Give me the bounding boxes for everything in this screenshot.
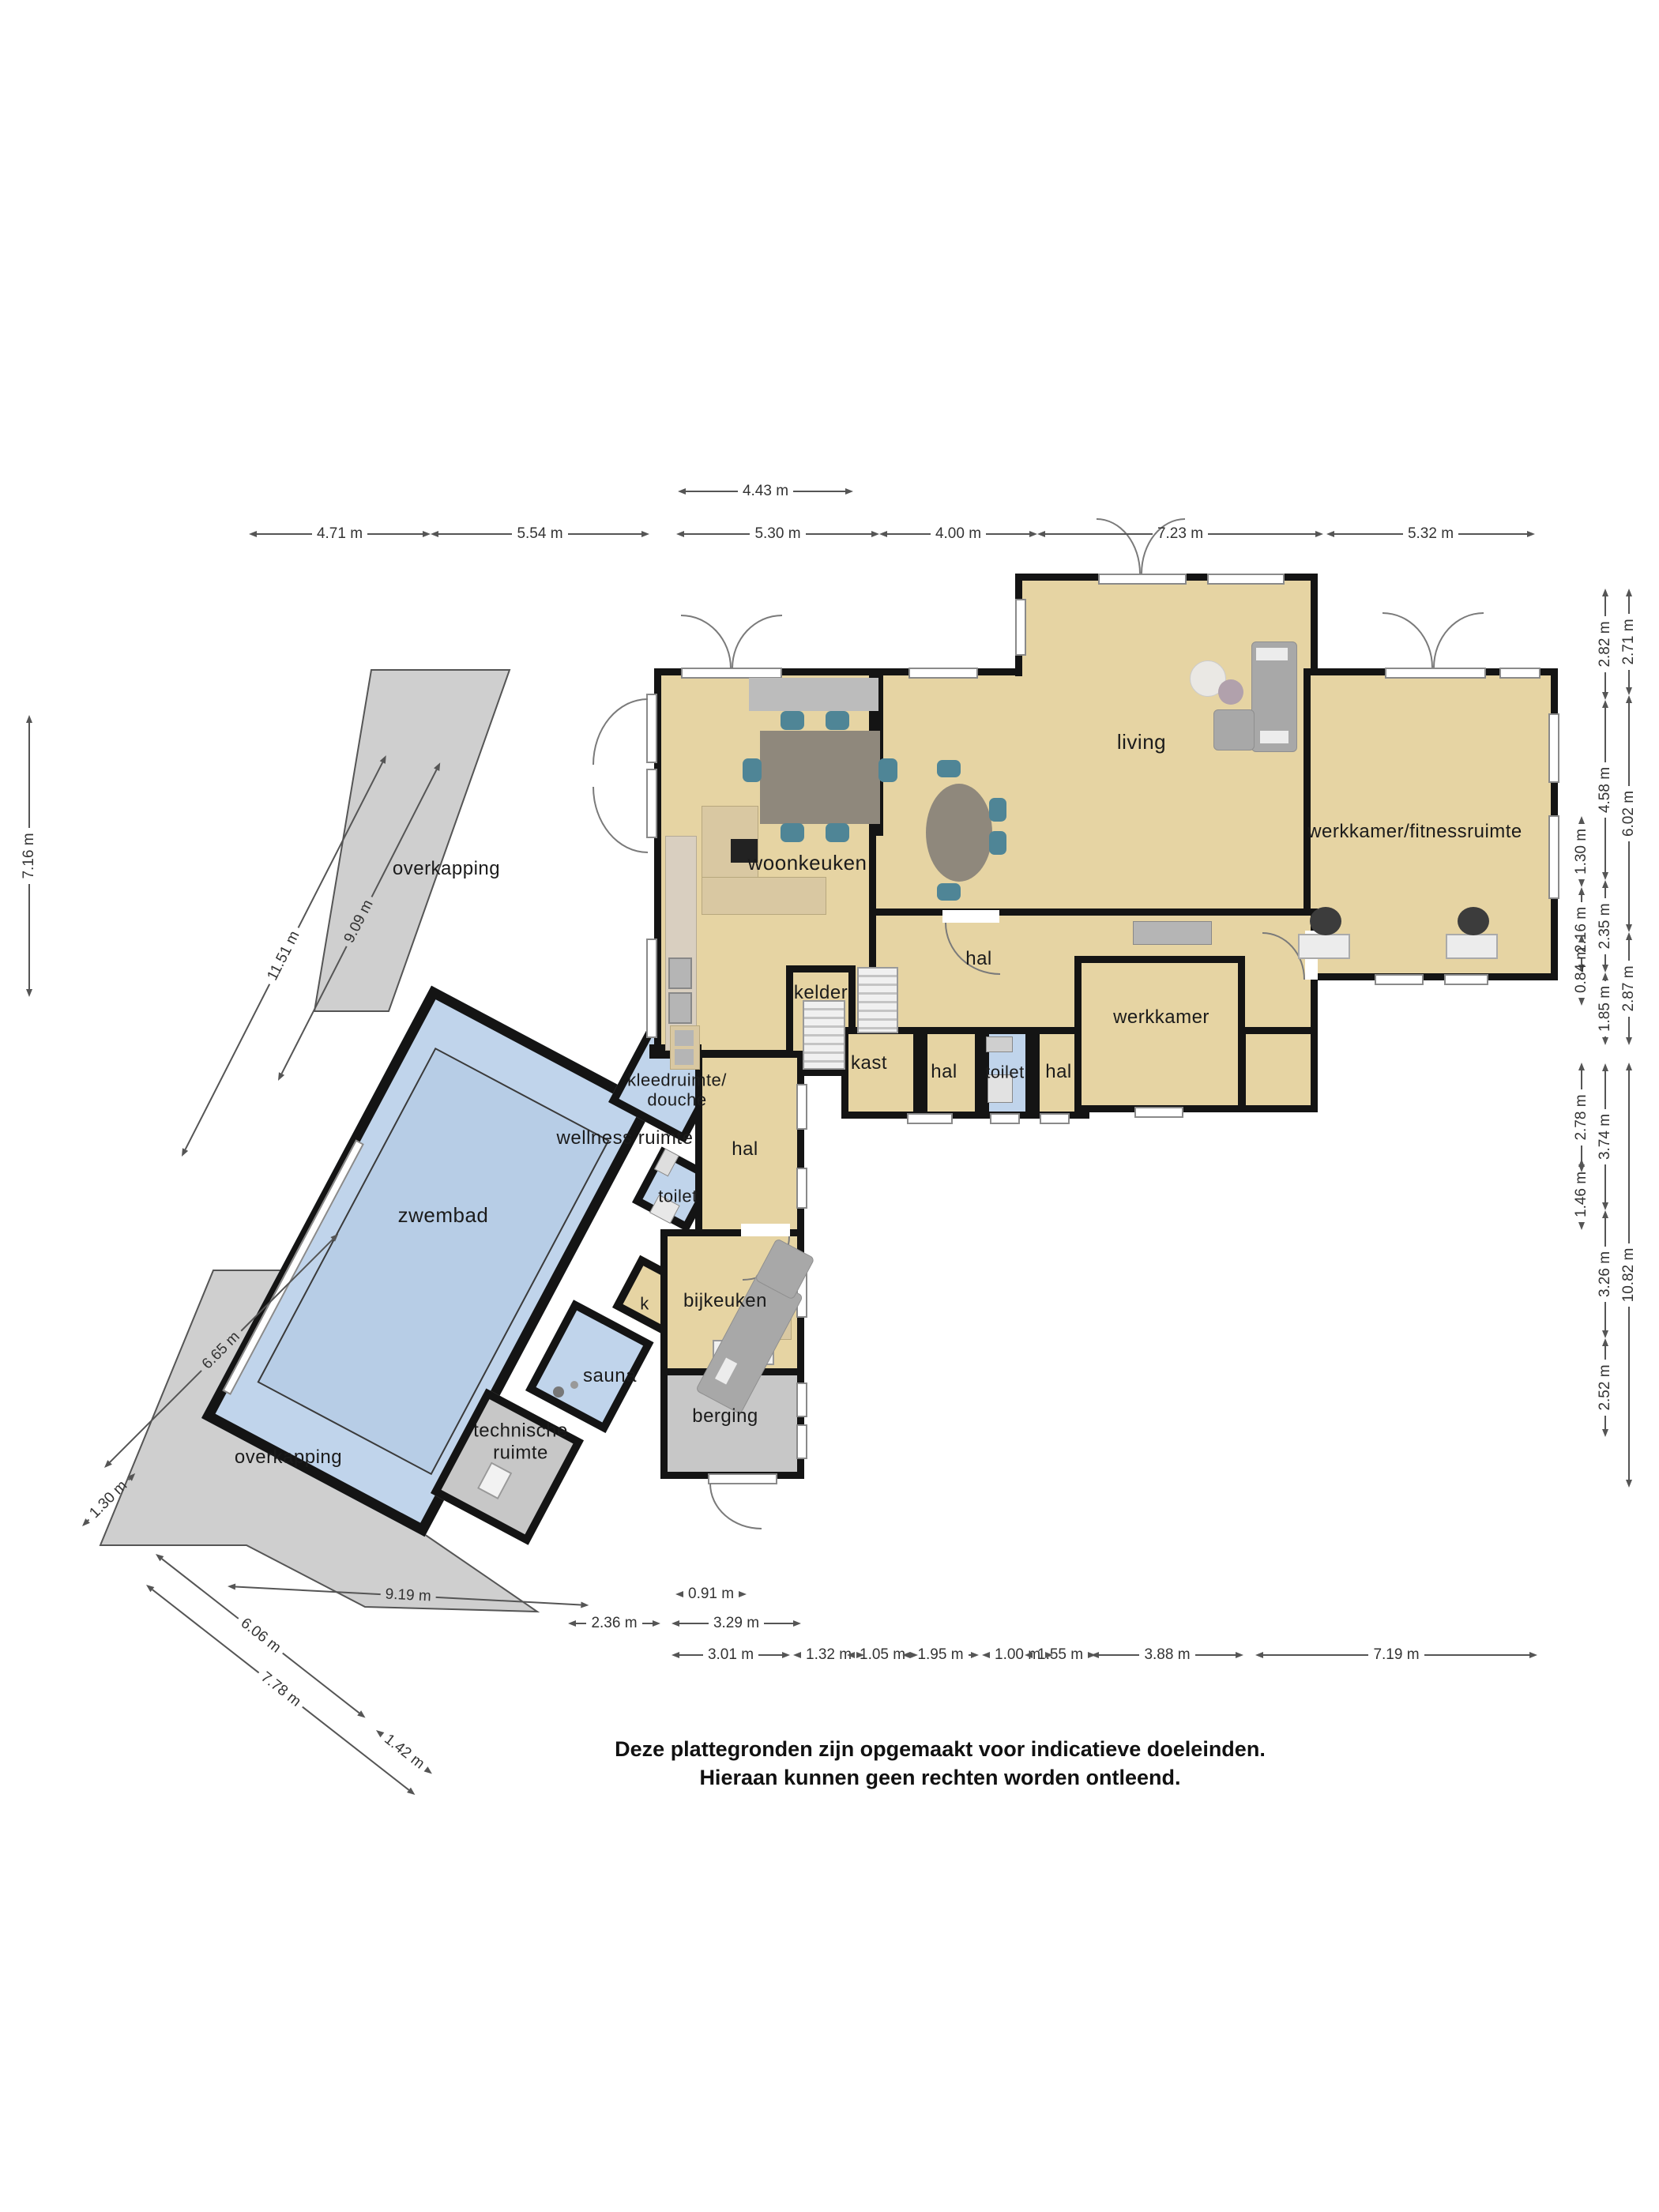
disclaimer-line-2: Hieraan kunnen geen rechten worden ontle… <box>545 1763 1335 1792</box>
disclaimer-line-1: Deze plattegronden zijn opgemaakt voor i… <box>545 1735 1335 1763</box>
room-berging <box>660 1368 804 1479</box>
room-hal-corridor <box>695 1051 804 1240</box>
room-hal-east <box>1239 1027 1318 1112</box>
room-living <box>869 668 1318 923</box>
overkapping-top-polygon <box>314 670 510 1011</box>
room-living-bay <box>1015 574 1318 676</box>
room-werkkamer <box>1074 956 1245 1112</box>
room-kast <box>841 1027 920 1119</box>
overkapping-layer <box>0 0 1659 2212</box>
disclaimer: Deze plattegronden zijn opgemaakt voor i… <box>545 1735 1335 1792</box>
floorplan-canvas: overkappingzwembadwellness ruimtekleedru… <box>0 0 1659 2212</box>
room-werkkamer-fitnessruimte <box>1303 668 1558 980</box>
room-hal-2 <box>920 1027 982 1119</box>
room-bijkeuken <box>660 1229 804 1375</box>
room-toilet-2 <box>982 1027 1033 1119</box>
